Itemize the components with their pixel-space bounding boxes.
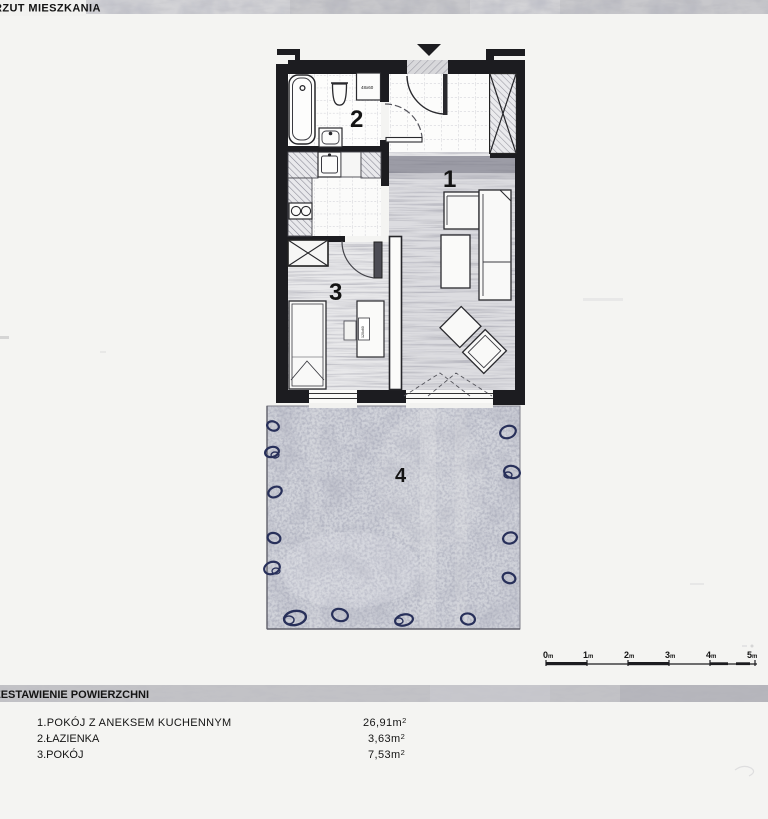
svg-text:2.ŁAZIENKA: 2.ŁAZIENKA: [37, 733, 100, 745]
svg-text:26,91m2: 26,91m2: [363, 716, 407, 729]
svg-text:120x60: 120x60: [361, 326, 365, 338]
svg-text:7,53m2: 7,53m2: [368, 748, 405, 761]
svg-text:48x60: 48x60: [361, 85, 374, 90]
svg-text:4: 4: [395, 465, 407, 487]
svg-text:3: 3: [329, 279, 342, 306]
svg-text:2: 2: [350, 106, 363, 133]
svg-text:3,63m2: 3,63m2: [368, 732, 405, 745]
svg-text:RZUT MIESZKANIA: RZUT MIESZKANIA: [0, 3, 101, 15]
svg-text:1: 1: [443, 166, 456, 193]
svg-text:ZESTAWIENIE POWIERZCHNI: ZESTAWIENIE POWIERZCHNI: [0, 689, 149, 701]
svg-text:1.POKÓJ Z ANEKSEM KUCHENNYM: 1.POKÓJ Z ANEKSEM KUCHENNYM: [37, 716, 232, 729]
svg-text:3.POKÓJ: 3.POKÓJ: [37, 748, 83, 761]
